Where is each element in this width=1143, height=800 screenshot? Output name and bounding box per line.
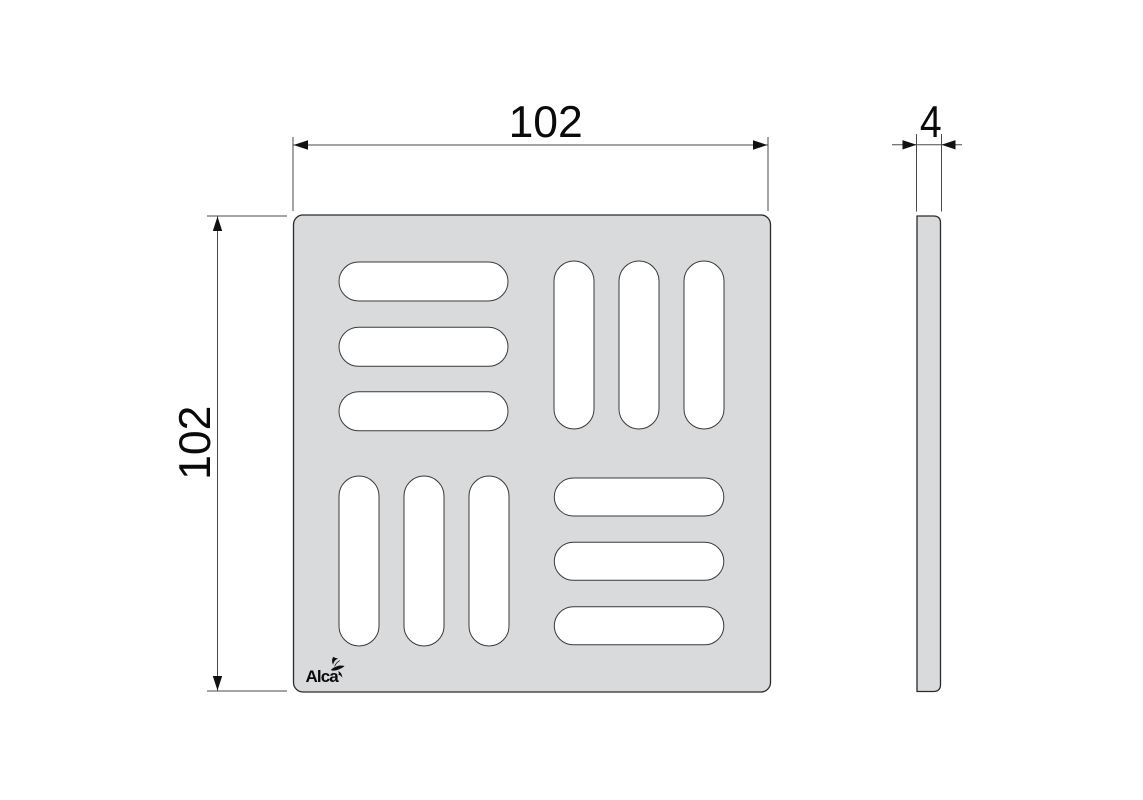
svg-text:4: 4 <box>920 97 942 147</box>
svg-text:102: 102 <box>509 98 583 147</box>
svg-text:102: 102 <box>171 406 220 480</box>
